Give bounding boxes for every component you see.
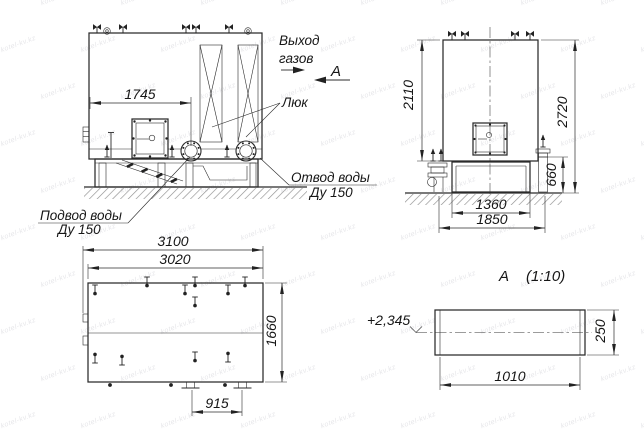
dim-detail-length: 1010 xyxy=(440,357,580,390)
ladder xyxy=(116,160,183,184)
dim-base-height: 660 xyxy=(543,157,568,193)
mounting-feet xyxy=(182,382,252,388)
water-supply-dn-label: Ду 150 xyxy=(56,222,101,237)
top-plan-view: 3100 3020 1660 915 xyxy=(83,233,287,416)
dim-overall-length: 3100 xyxy=(83,233,263,313)
detail-scale: (1:10) xyxy=(526,268,565,285)
water-outlet-dn-label: Ду 150 xyxy=(308,185,353,200)
plan-fittings xyxy=(92,277,248,387)
support-frame-front xyxy=(95,159,258,187)
inspection-hatch-door-front xyxy=(132,119,168,158)
dim-1360-label: 1360 xyxy=(475,196,506,212)
elevation-label: +2,345 xyxy=(367,312,410,328)
elevation-mark-icon xyxy=(410,327,422,333)
front-view: 1745 Выход газов А Люк Отвод вод xyxy=(38,24,377,237)
water-outlet-flange xyxy=(236,141,256,161)
gas-duct-panels xyxy=(200,45,258,142)
dim-width: 1660 xyxy=(263,283,287,382)
elevation-annotation: +2,345 xyxy=(367,312,422,333)
view-a-letter: А xyxy=(330,63,341,80)
hatch-label: Люк xyxy=(281,95,308,110)
boiler-body-side xyxy=(443,40,538,161)
dim-feet-spacing: 915 xyxy=(192,390,242,416)
gas-outlet-annotation: Выход газов xyxy=(279,33,320,73)
gas-outlet-label-line2: газов xyxy=(279,51,313,66)
dim-body-length: 3020 xyxy=(88,251,263,279)
gas-outlet-label-line1: Выход xyxy=(279,33,320,48)
dim-1010-label: 1010 xyxy=(494,368,525,384)
drawing-canvas: kotel-kv.kzkotel-kv.kzkotel-kv.kzkotel-k… xyxy=(0,0,644,430)
dim-2720-label: 2720 xyxy=(554,96,570,128)
duct-section xyxy=(416,310,592,355)
pipe-assembly-left xyxy=(428,149,448,193)
dim-1660-label: 1660 xyxy=(263,315,279,346)
water-supply-label: Подвод воды xyxy=(40,208,122,223)
detail-view-a: А (1:10) +2,345 250 10 xyxy=(367,268,619,390)
dim-body-height: 2110 xyxy=(400,40,440,161)
technical-drawing: 1745 Выход газов А Люк Отвод вод xyxy=(0,0,644,430)
body-outline-plan xyxy=(88,283,263,382)
dim-1850-label: 1850 xyxy=(476,211,507,227)
top-fittings-side xyxy=(448,31,534,40)
side-view: 2110 2720 660 1360 xyxy=(400,27,579,233)
view-a-marker: А xyxy=(314,63,350,83)
ground-front xyxy=(84,187,307,199)
dim-2110-label: 2110 xyxy=(400,80,416,111)
dim-flange-offset: 1745 xyxy=(90,86,191,146)
dim-250-label: 250 xyxy=(592,319,608,344)
dim-915-label: 915 xyxy=(205,395,229,411)
boiler-body-front xyxy=(83,33,262,159)
hatch-annotation: Люк xyxy=(212,95,308,137)
dim-3020-label: 3020 xyxy=(159,251,190,267)
bottom-studs-front xyxy=(104,145,229,158)
dim-3100-label: 3100 xyxy=(157,233,188,249)
dim-660-label: 660 xyxy=(543,163,559,187)
detail-title: А xyxy=(498,268,509,285)
support-base-side xyxy=(452,162,530,192)
dim-detail-height: 250 xyxy=(587,310,619,355)
dim-1745-label: 1745 xyxy=(124,86,155,102)
water-outlet-label: Отвод воды xyxy=(291,170,370,185)
